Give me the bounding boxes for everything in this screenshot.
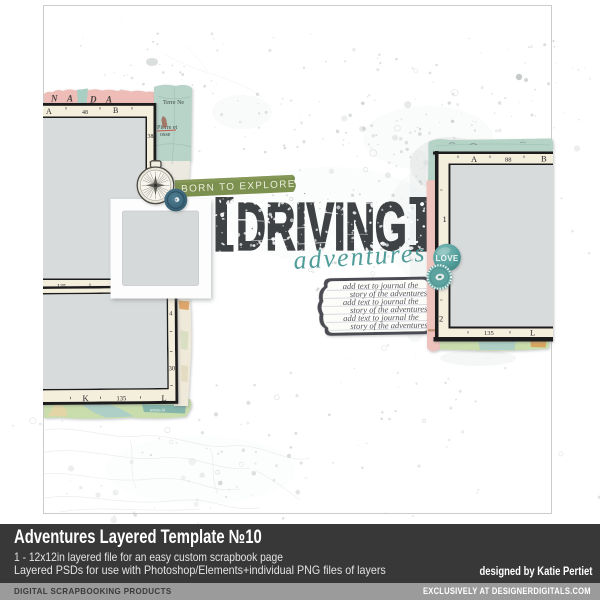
svg-text:A: A [471, 154, 478, 164]
svg-text:A: A [46, 107, 52, 116]
svg-text:L: L [530, 328, 535, 338]
svg-text:38: 38 [148, 134, 154, 140]
svg-text:N: N [50, 94, 58, 104]
svg-text:1: 1 [443, 214, 447, 224]
svg-text:135: 135 [116, 395, 126, 402]
svg-text:story of the adventures: story of the adventures [350, 320, 428, 331]
svg-text:30: 30 [169, 365, 176, 372]
svg-text:LOVE: LOVE [436, 254, 459, 263]
svg-text:2: 2 [439, 314, 443, 324]
svg-text:enos-Ai: enos-Ai [150, 408, 165, 413]
svg-text:B: B [113, 106, 118, 115]
svg-text:88: 88 [505, 157, 512, 164]
svg-text:48: 48 [82, 110, 88, 116]
svg-text:A: A [66, 94, 73, 104]
svg-text:K: K [82, 393, 89, 403]
svg-text:135: 135 [484, 330, 494, 337]
svg-text:Terre Ne: Terre Ne [163, 100, 184, 106]
svg-text:B: B [541, 154, 547, 164]
svg-text:osse: osse [160, 132, 171, 138]
svg-text:L: L [161, 393, 166, 403]
